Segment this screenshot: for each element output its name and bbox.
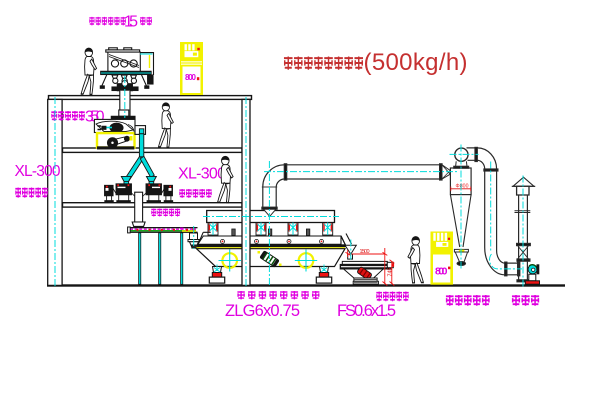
svg-text:XL-300: XL-300 <box>178 166 226 183</box>
svg-text:FS0.6x1.5: FS0.6x1.5 <box>337 302 396 320</box>
svg-text:XL-300: XL-300 <box>15 163 61 180</box>
svg-text:(500kg/h): (500kg/h) <box>364 49 468 76</box>
svg-text:1.5: 1.5 <box>124 14 138 31</box>
svg-text:1500: 1500 <box>360 249 370 255</box>
svg-text:745: 745 <box>388 268 394 277</box>
svg-text:800: 800 <box>435 266 448 278</box>
svg-text:800: 800 <box>185 73 197 82</box>
svg-text:ZLG6x0.75: ZLG6x0.75 <box>225 302 300 320</box>
